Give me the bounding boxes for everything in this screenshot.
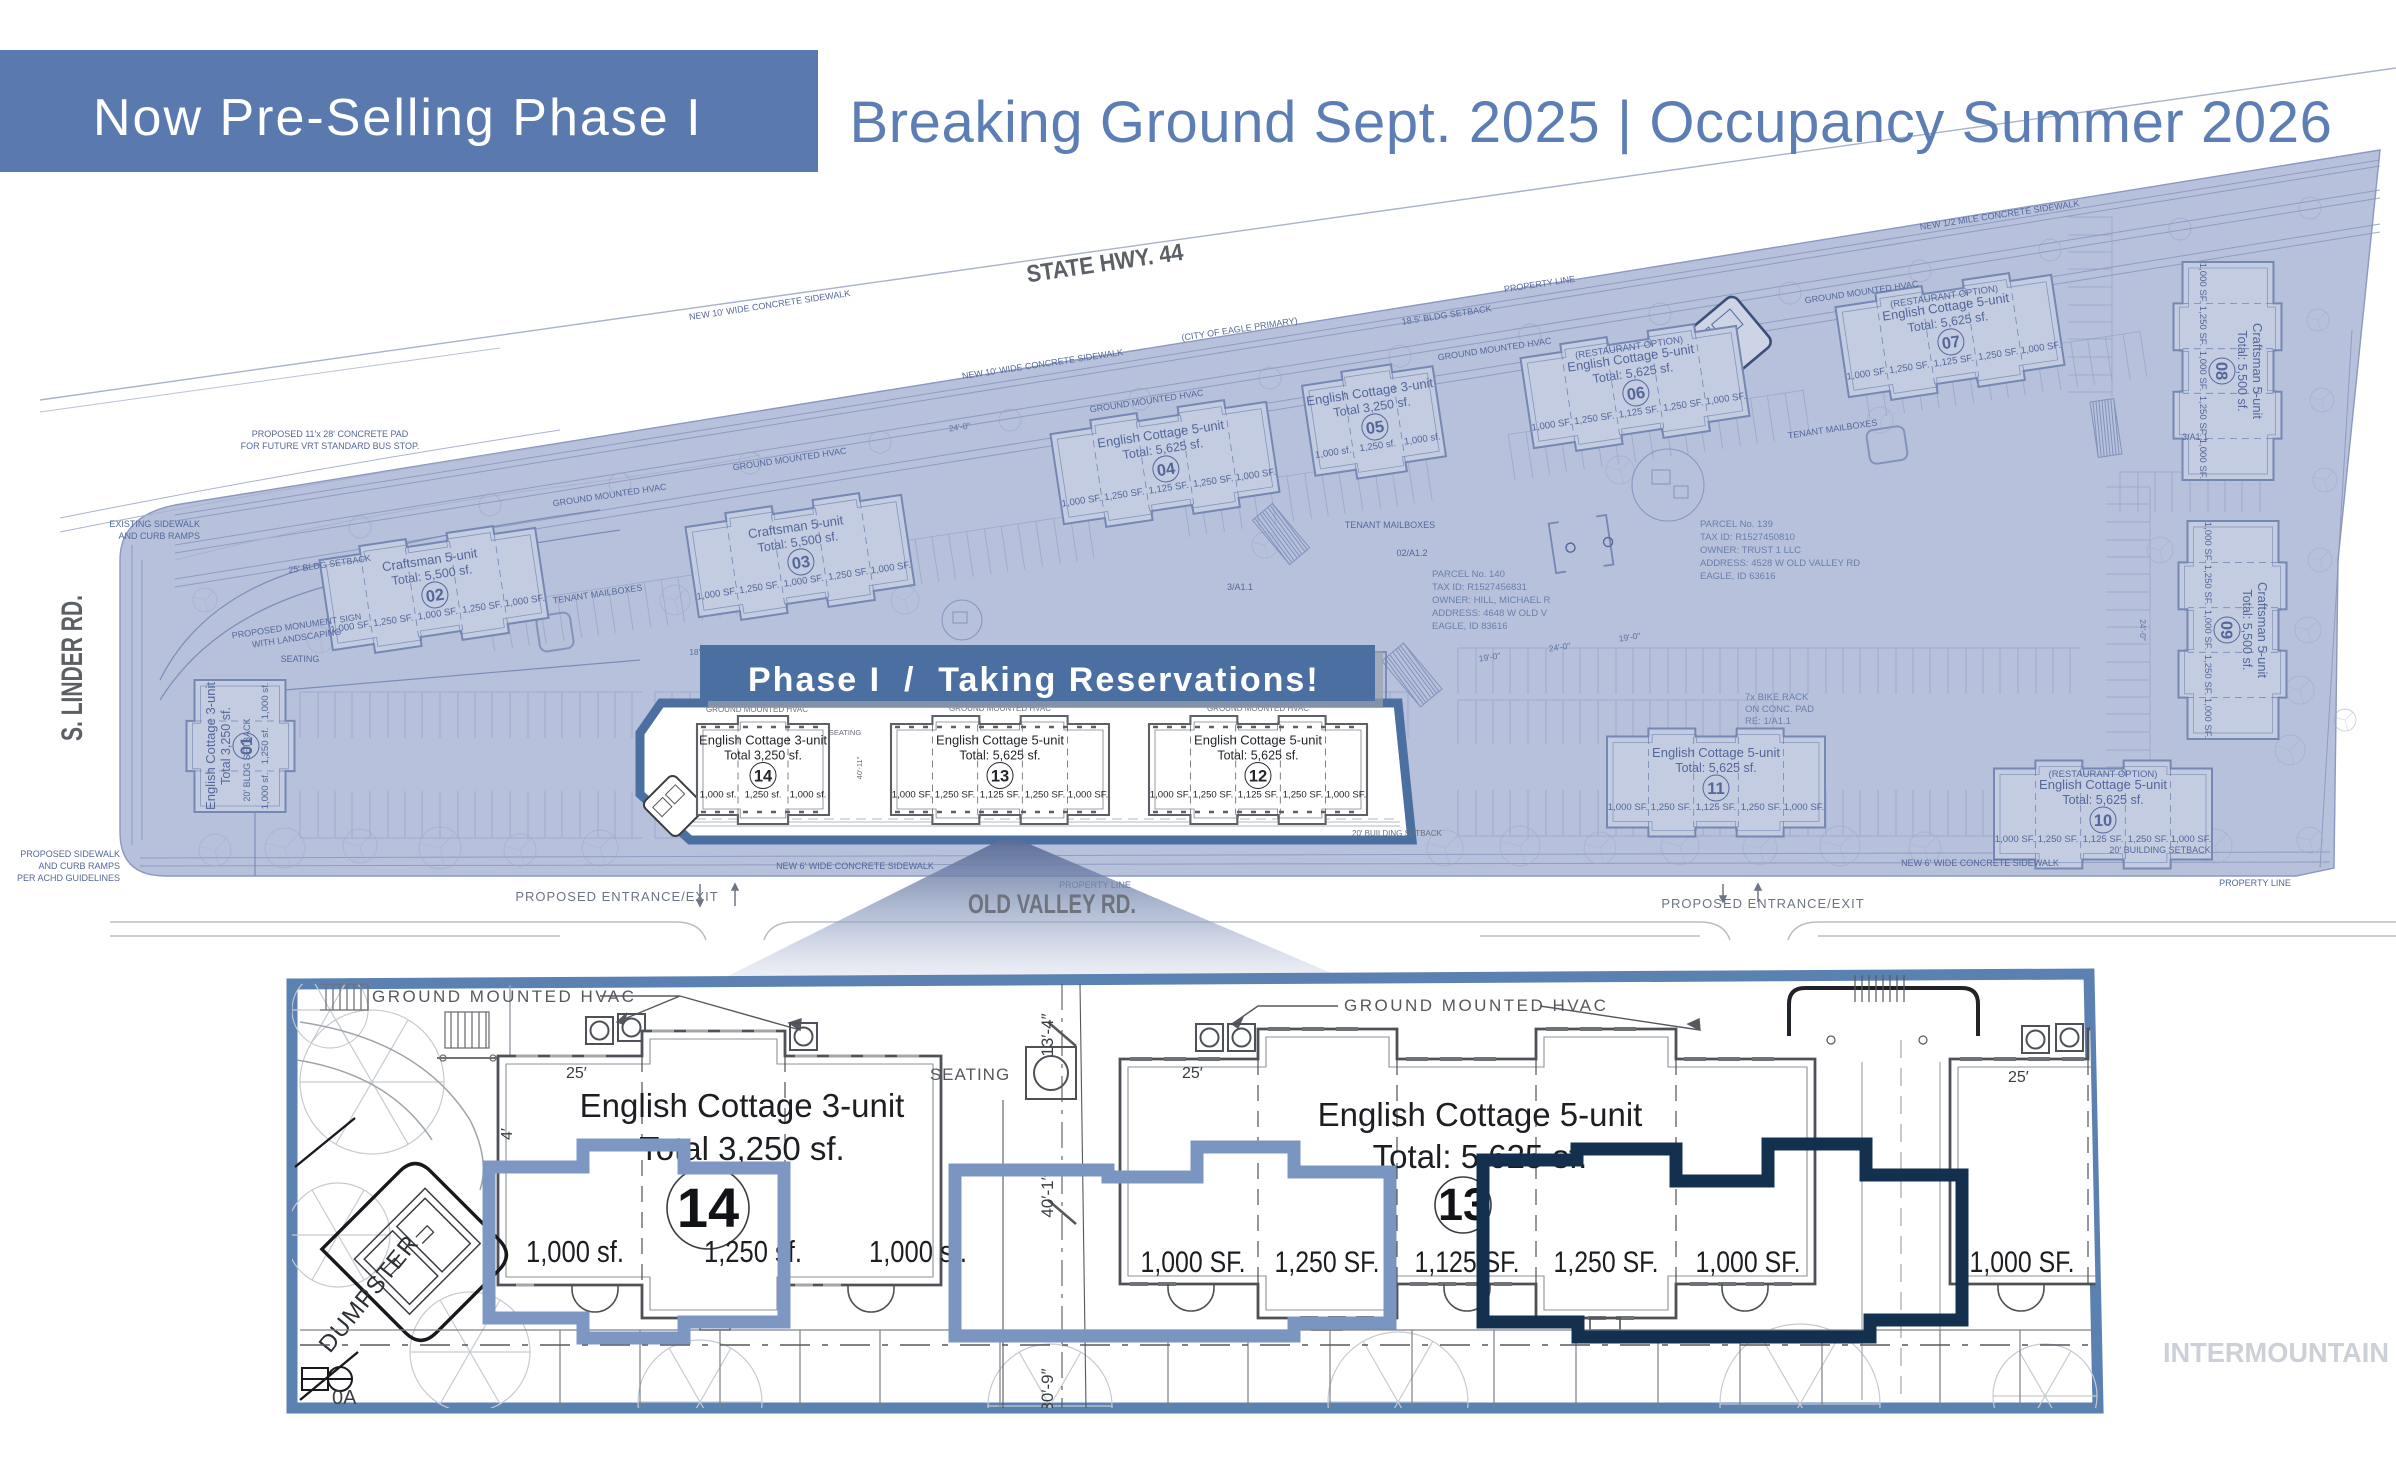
svg-text:Craftsman 5-unit: Craftsman 5-unit	[2250, 323, 2265, 419]
svg-text:Total 3,250 sf.: Total 3,250 sf.	[724, 749, 802, 763]
svg-text:PROPOSED SIDEWALK: PROPOSED SIDEWALK	[20, 849, 120, 859]
svg-text:1,125 SF.: 1,125 SF.	[2083, 834, 2124, 845]
svg-text:EXISTING SIDEWALK: EXISTING SIDEWALK	[109, 519, 200, 529]
svg-text:40′-1″: 40′-1″	[1038, 1174, 1057, 1217]
svg-text:Phase I / Taking Reservation: Phase I / Taking Reservations!	[748, 661, 1320, 699]
svg-text:English Cottage 5-unit: English Cottage 5-unit	[1318, 1096, 1643, 1133]
svg-text:ON CONC. PAD: ON CONC. PAD	[1745, 704, 1814, 715]
svg-text:3/A1.1: 3/A1.1	[1227, 582, 1253, 592]
svg-text:1,000 SF.: 1,000 SF.	[2171, 834, 2212, 845]
svg-text:20′ BLDG SETBACK: 20′ BLDG SETBACK	[242, 718, 252, 801]
svg-text:Craftsman 5-unit: Craftsman 5-unit	[2255, 582, 2270, 678]
svg-text:1,000 sf.: 1,000 sf.	[700, 790, 737, 801]
svg-text:English Cottage 5-unit: English Cottage 5-unit	[1652, 745, 1780, 760]
svg-text:24′-0″: 24′-0″	[2138, 619, 2148, 641]
svg-text:20′ BUILDING SETBACK: 20′ BUILDING SETBACK	[2109, 845, 2210, 855]
svg-text:English Cottage 5-unit: English Cottage 5-unit	[2039, 777, 2167, 792]
svg-text:10: 10	[2094, 812, 2112, 830]
svg-text:02: 02	[425, 586, 446, 607]
svg-text:1,250 SF.: 1,250 SF.	[2202, 565, 2213, 606]
svg-text:1,000 SF.: 1,000 SF.	[1608, 802, 1649, 813]
svg-text:1,250 SF.: 1,250 SF.	[1741, 802, 1782, 813]
svg-text:Total: 5,500 sf.: Total: 5,500 sf.	[2240, 589, 2254, 670]
svg-text:PARCEL No. 140: PARCEL No. 140	[1432, 569, 1505, 580]
svg-text:1,000 SF.: 1,000 SF.	[2197, 351, 2208, 392]
svg-text:Total 3,250 sf.: Total 3,250 sf.	[219, 707, 233, 785]
svg-text:1,000 SF.: 1,000 SF.	[2202, 698, 2213, 739]
svg-text:1,125 SF.: 1,125 SF.	[1238, 790, 1279, 801]
svg-text:1,250 SF.: 1,250 SF.	[1283, 790, 1324, 801]
svg-text:English Cottage 3-unit: English Cottage 3-unit	[699, 733, 827, 748]
svg-text:03: 03	[791, 553, 812, 574]
svg-text:1,000 sf.: 1,000 sf.	[790, 790, 827, 801]
svg-text:40′-11″: 40′-11″	[855, 756, 864, 779]
svg-text:1,000 SF.: 1,000 SF.	[2197, 263, 2208, 304]
svg-text:English Cottage 5-unit: English Cottage 5-unit	[936, 733, 1064, 748]
svg-text:PROPOSED 11′x 28′ CONCRETE PAD: PROPOSED 11′x 28′ CONCRETE PAD	[252, 429, 409, 439]
svg-text:1,125 SF.: 1,125 SF.	[1415, 1246, 1520, 1279]
svg-text:1,125 SF.: 1,125 SF.	[1696, 802, 1737, 813]
svg-text:1,250 sf.: 1,250 sf.	[260, 728, 271, 765]
svg-text:1,250 sf.: 1,250 sf.	[745, 790, 782, 801]
svg-text:1,000 SF.: 1,000 SF.	[1150, 790, 1191, 801]
svg-text:Total: 5,500 sf.: Total: 5,500 sf.	[2235, 330, 2249, 411]
svg-text:12: 12	[1249, 768, 1267, 786]
svg-text:TAX ID: R1527456831: TAX ID: R1527456831	[1432, 582, 1527, 593]
svg-text:Total: 5,625 sf.: Total: 5,625 sf.	[2062, 793, 2143, 807]
svg-text:FOR FUTURE VRT STANDARD BUS ST: FOR FUTURE VRT STANDARD BUS STOP.	[241, 441, 420, 451]
svg-text:1,250 SF.: 1,250 SF.	[1651, 802, 1692, 813]
svg-text:14: 14	[677, 1176, 739, 1239]
svg-text:PROPOSED ENTRANCE/EXIT: PROPOSED ENTRANCE/EXIT	[515, 889, 718, 904]
svg-text:Now Pre-Selling Phase I: Now Pre-Selling Phase I	[93, 89, 703, 147]
svg-text:1,000 SF.: 1,000 SF.	[1995, 834, 2036, 845]
svg-text:1,250 SF.: 1,250 SF.	[2128, 834, 2169, 845]
svg-text:13: 13	[991, 768, 1009, 786]
svg-text:NEW 6′ WIDE CONCRETE SIDEWALK: NEW 6′ WIDE CONCRETE SIDEWALK	[1901, 858, 2059, 868]
svg-text:1,000 SF.: 1,000 SF.	[1970, 1246, 2075, 1279]
svg-text:1,000 sf.: 1,000 sf.	[260, 773, 271, 810]
svg-text:ADDRESS: 4528 W OLD VALLEY RD: ADDRESS: 4528 W OLD VALLEY RD	[1700, 558, 1860, 569]
svg-text:PROPERTY LINE: PROPERTY LINE	[2219, 878, 2291, 888]
svg-text:0A: 0A	[332, 1387, 357, 1409]
svg-text:4′: 4′	[499, 1128, 516, 1140]
svg-text:05: 05	[1365, 418, 1386, 439]
svg-text:25′: 25′	[2008, 1069, 2029, 1086]
svg-text:04: 04	[1156, 460, 1178, 481]
svg-text:OLD VALLEY RD.: OLD VALLEY RD.	[968, 889, 1136, 919]
svg-text:1,000 SF.: 1,000 SF.	[892, 790, 933, 801]
svg-text:Total: 5,625 sf.: Total: 5,625 sf.	[1675, 761, 1756, 775]
svg-text:SEATING: SEATING	[281, 654, 320, 664]
svg-text:30′-9″: 30′-9″	[1038, 1368, 1057, 1411]
svg-text:TENANT MAILBOXES: TENANT MAILBOXES	[1345, 520, 1435, 530]
svg-text:1,000 SF.: 1,000 SF.	[1326, 790, 1367, 801]
svg-text:GROUND MOUNTED HVAC: GROUND MOUNTED HVAC	[1344, 996, 1608, 1015]
svg-text:06: 06	[1626, 384, 1647, 405]
svg-text:1,000 SF.: 1,000 SF.	[1696, 1246, 1801, 1279]
svg-text:Total: 5,625 sf.: Total: 5,625 sf.	[1217, 749, 1298, 763]
svg-text:08: 08	[2212, 362, 2230, 380]
svg-text:1,125 SF.: 1,125 SF.	[980, 790, 1021, 801]
svg-text:PROPOSED ENTRANCE/EXIT: PROPOSED ENTRANCE/EXIT	[1661, 896, 1864, 911]
svg-text:PER ACHD GUIDELINES: PER ACHD GUIDELINES	[17, 873, 120, 883]
svg-text:1,000 sf.: 1,000 sf.	[260, 683, 271, 720]
svg-text:PARCEL No. 139: PARCEL No. 139	[1700, 519, 1773, 530]
svg-text:OWNER: TRUST 1 LLC: OWNER: TRUST 1 LLC	[1700, 545, 1801, 556]
svg-text:EAGLE, ID 83616: EAGLE, ID 83616	[1432, 621, 1508, 632]
svg-text:SEATING: SEATING	[829, 728, 862, 737]
svg-text:1,250 SF.: 1,250 SF.	[1193, 790, 1234, 801]
svg-text:GROUND MOUNTED HVAC: GROUND MOUNTED HVAC	[372, 987, 636, 1006]
svg-text:02/A1.2: 02/A1.2	[1396, 548, 1427, 558]
svg-text:7x BIKE RACK: 7x BIKE RACK	[1745, 692, 1809, 703]
svg-text:1,250 SF.: 1,250 SF.	[1025, 790, 1066, 801]
svg-text:07: 07	[1941, 333, 1962, 354]
svg-text:AND CURB RAMPS: AND CURB RAMPS	[38, 861, 120, 871]
svg-text:English Cottage 3-unit: English Cottage 3-unit	[203, 682, 218, 810]
svg-text:1,250 SF.: 1,250 SF.	[1275, 1246, 1380, 1279]
svg-text:25′: 25′	[566, 1065, 587, 1082]
svg-text:1,000 SF.: 1,000 SF.	[2202, 610, 2213, 651]
svg-text:Breaking Ground Sept. 2025 | O: Breaking Ground Sept. 2025 | Occupancy S…	[849, 90, 2332, 155]
svg-text:14: 14	[754, 768, 773, 786]
svg-text:1,250 SF.: 1,250 SF.	[2202, 655, 2213, 696]
svg-text:English Cottage 3-unit: English Cottage 3-unit	[580, 1087, 905, 1124]
svg-text:EAGLE, ID 63616: EAGLE, ID 63616	[1700, 571, 1776, 582]
svg-text:NEW 6′ WIDE CONCRETE SIDEWALK: NEW 6′ WIDE CONCRETE SIDEWALK	[776, 861, 934, 871]
svg-text:Total: 5,625 sf.: Total: 5,625 sf.	[959, 749, 1040, 763]
svg-text:OWNER: HILL, MICHAEL R: OWNER: HILL, MICHAEL R	[1432, 595, 1551, 606]
svg-text:1,250 SF.: 1,250 SF.	[2197, 396, 2208, 437]
svg-text:20′ BUILDING SETBACK: 20′ BUILDING SETBACK	[1352, 829, 1443, 838]
svg-text:AND CURB RAMPS: AND CURB RAMPS	[118, 531, 200, 541]
svg-text:1,250 SF.: 1,250 SF.	[1554, 1246, 1659, 1279]
svg-text:1,000 SF.: 1,000 SF.	[1068, 790, 1109, 801]
svg-text:1,000 sf.: 1,000 sf.	[526, 1234, 624, 1269]
svg-text:S. LINDER RD.: S. LINDER RD.	[56, 595, 89, 741]
svg-text:ADDRESS: 4648 W OLD V: ADDRESS: 4648 W OLD V	[1432, 608, 1548, 619]
svg-text:09: 09	[2217, 621, 2235, 639]
svg-text:1,250 SF.: 1,250 SF.	[935, 790, 976, 801]
svg-text:3/A1.1: 3/A1.1	[2182, 432, 2208, 442]
svg-text:13′-4″: 13′-4″	[1038, 1013, 1057, 1056]
svg-text:1,000 SF.: 1,000 SF.	[1141, 1246, 1246, 1279]
svg-text:English Cottage 5-unit: English Cottage 5-unit	[1194, 733, 1322, 748]
svg-text:SEATING: SEATING	[930, 1065, 1010, 1084]
svg-text:1,000 SF.: 1,000 SF.	[2197, 439, 2208, 480]
svg-text:TAX ID: R1527450810: TAX ID: R1527450810	[1700, 532, 1795, 543]
svg-text:1,250 SF.: 1,250 SF.	[2197, 306, 2208, 347]
svg-text:11: 11	[1707, 780, 1724, 798]
svg-text:1,000 SF.: 1,000 SF.	[1784, 802, 1825, 813]
svg-text:1,250 SF.: 1,250 SF.	[2038, 834, 2079, 845]
svg-text:INTERMOUNTAIN: INTERMOUNTAIN	[2163, 1337, 2389, 1368]
svg-text:1,000 SF.: 1,000 SF.	[2202, 522, 2213, 563]
svg-text:25′: 25′	[1182, 1065, 1203, 1082]
svg-text:RE: 1/A1.1: RE: 1/A1.1	[1745, 716, 1791, 727]
